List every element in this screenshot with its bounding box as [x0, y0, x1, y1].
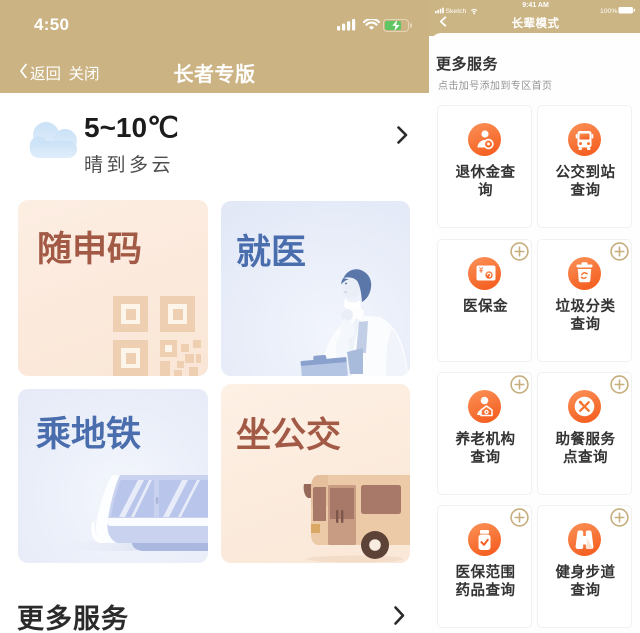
- svg-text:100%: 100%: [600, 8, 617, 15]
